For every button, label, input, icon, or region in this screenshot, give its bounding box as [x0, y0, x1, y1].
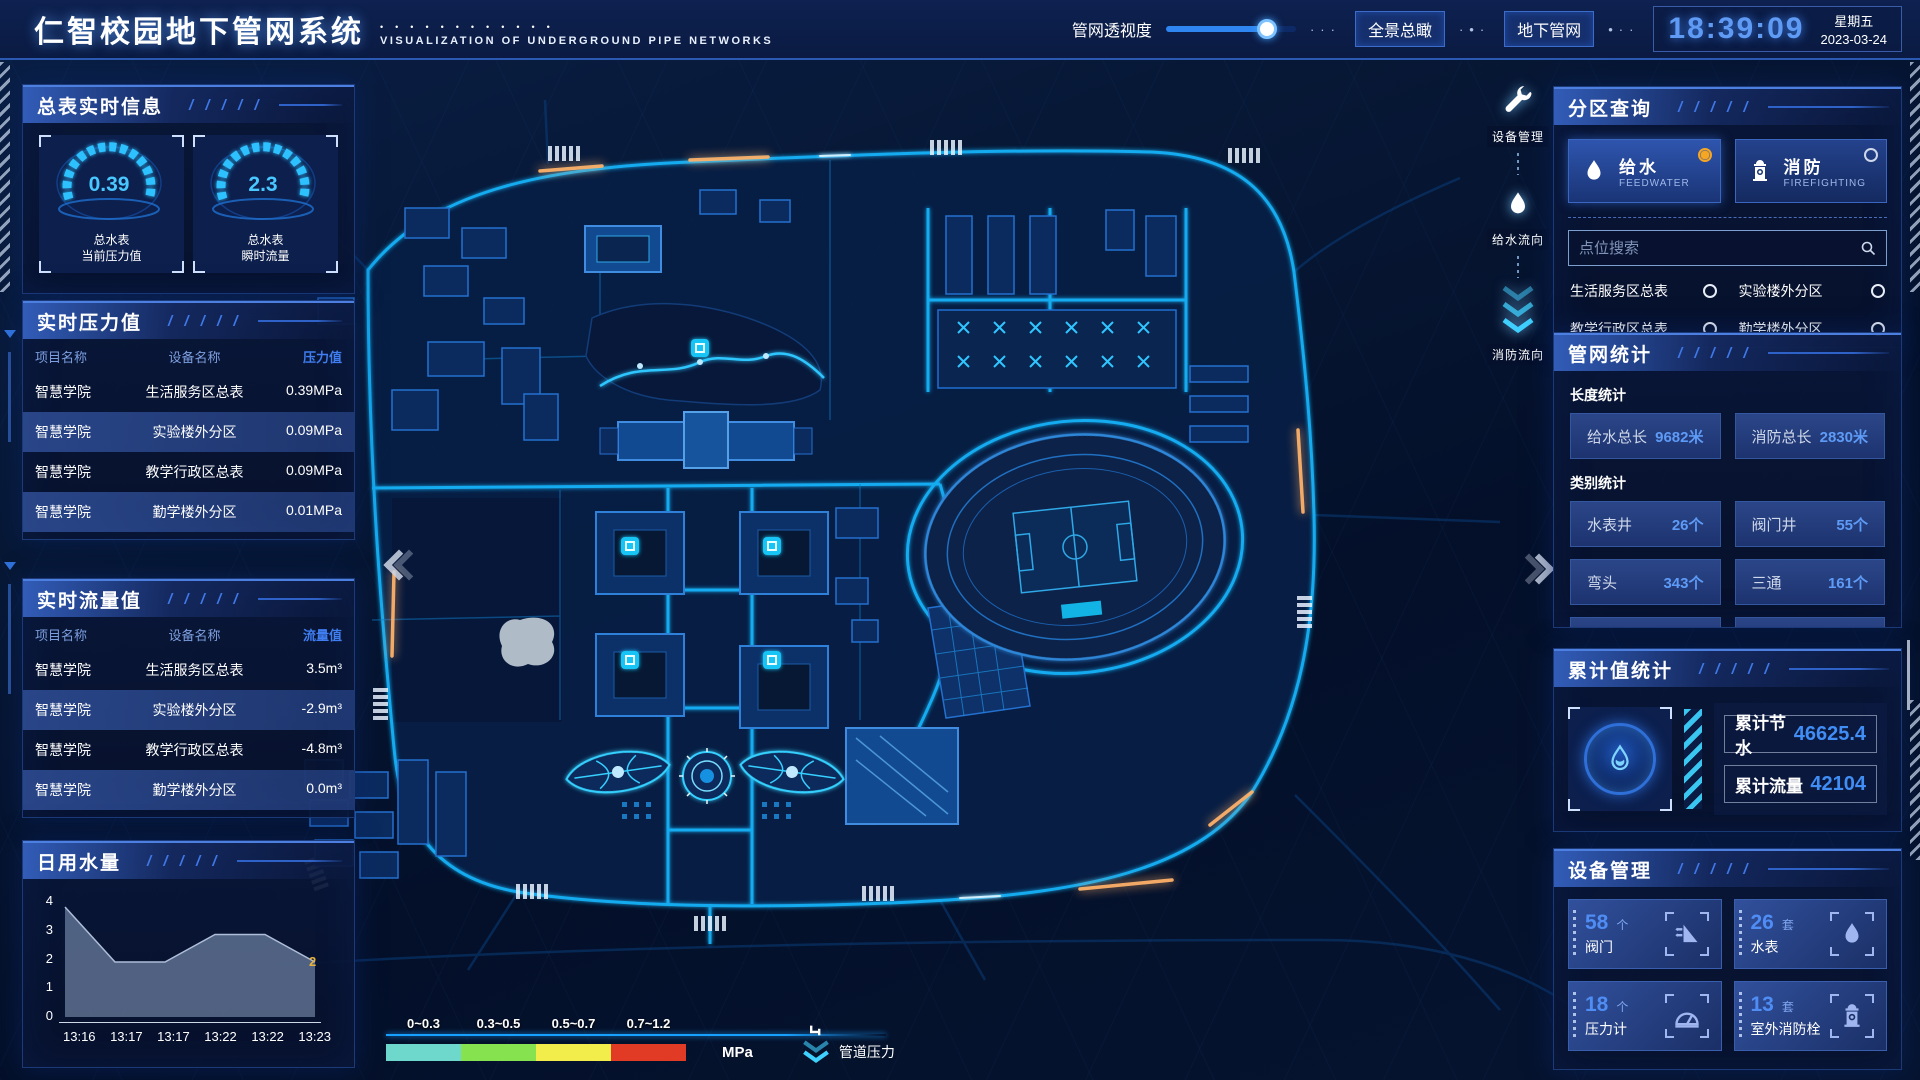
table-row[interactable]: 智慧学院实验楼外分区0.09MPa — [23, 412, 354, 452]
feedwater-flow-tool-label: 给水流向 — [1487, 229, 1549, 250]
search-input[interactable] — [1579, 240, 1860, 257]
scroll-bar[interactable] — [1907, 640, 1910, 710]
table-header: 项目名称 设备名称 压力值 — [23, 339, 354, 372]
cumulative-saving-row: 累计节水 46625.4 — [1724, 715, 1877, 753]
wrench-icon — [1501, 84, 1535, 118]
scroll-marker — [4, 330, 16, 338]
weekday: 星期五 — [1834, 11, 1873, 30]
search-icon[interactable] — [1860, 240, 1876, 256]
stat-box-valve-well: 阀门井 55个 — [1735, 501, 1886, 547]
panel-title: 管网统计 — [1568, 340, 1652, 367]
slash-decoration — [1678, 861, 1752, 878]
zone-list-item[interactable]: 实验楼外分区 — [1737, 272, 1888, 310]
scroll-bar[interactable] — [8, 352, 11, 442]
table-header: 项目名称 设备名称 流量值 — [23, 617, 354, 650]
pipe-stats-panel: 管网统计 长度统计 给水总长 9682米 消防总长 2830米 类别统计 水表井… — [1553, 332, 1902, 628]
stat-box-clipped — [1735, 617, 1886, 628]
chart-end-value: 2 — [309, 954, 316, 969]
slash-decoration — [1678, 99, 1752, 116]
zone-list-item[interactable]: 生活服务区总表 — [1568, 272, 1719, 310]
slash-decoration — [189, 97, 263, 114]
water-drop-icon — [1504, 189, 1532, 219]
scroll-bar[interactable] — [8, 584, 11, 694]
flow-table-panel: 实时流量值 项目名称 设备名称 流量值 智慧学院生活服务区总表3.5m³ 智慧学… — [22, 578, 355, 818]
pipe-pressure-icon[interactable] — [801, 1024, 831, 1066]
water-drop-icon — [1839, 921, 1865, 947]
clock-box: 18:39:09 星期五 2023-03-24 — [1653, 6, 1902, 52]
dashed-divider — [1568, 217, 1887, 218]
device-mgmt-tool-label: 设备管理 — [1487, 126, 1549, 147]
pressure-table-panel: 实时压力值 项目名称 设备名称 压力值 智慧学院生活服务区总表0.39MPa 智… — [22, 300, 355, 540]
zone-radio[interactable] — [1871, 284, 1885, 298]
zone-query-panel: 分区查询 给水 FEEDWATER 消防 FIREFIGHTING — [1553, 86, 1902, 348]
panel-title: 分区查询 — [1568, 94, 1652, 121]
cumulative-panel: 累计值统计 累计节水 46625.4 累计流量 42104 — [1553, 648, 1902, 832]
panel-header: 总表实时信息 — [23, 85, 354, 123]
firefighting-toggle[interactable]: 消防 FIREFIGHTING — [1735, 139, 1888, 203]
cumulative-flow-row: 累计流量 42104 — [1724, 765, 1877, 803]
gauge-value-text: 0.39 — [89, 173, 130, 196]
pressure-gauge-icon — [1673, 1002, 1701, 1030]
edge-hatch-decoration — [1910, 700, 1920, 860]
stat-box-clipped — [1570, 617, 1721, 628]
gauge-value-text: 2.3 — [248, 173, 277, 196]
gauge-label: 总水表 当前压力值 — [39, 232, 184, 264]
legend-swatch — [461, 1044, 536, 1061]
panel-title: 实时流量值 — [37, 586, 142, 613]
slash-decoration — [1699, 661, 1773, 678]
area-chart-svg: 2 — [59, 893, 321, 1023]
edge-hatch-decoration — [0, 62, 10, 292]
meter-info-panel: 总表实时信息 0.39 总水表 当前压力值 — [22, 84, 355, 294]
daily-usage-panel: 日用水量 4 3 2 1 0 2 — [22, 840, 355, 1068]
clock-time: 18:39:09 — [1668, 12, 1804, 46]
line-decoration — [258, 320, 342, 322]
pressure-legend: 0~0.30.3~0.5 0.5~0.70.7~1.2 MPa 管道压力 — [386, 1016, 946, 1066]
header: 仁智校园地下管网系统 •••••••••••• VISUALIZATION OF… — [0, 0, 1920, 60]
table-row[interactable]: 智慧学院实验楼外分区-2.9m³ — [23, 690, 354, 730]
app-title: 仁智校园地下管网系统 — [34, 7, 364, 51]
gauge-label: 总水表 瞬时流量 — [193, 232, 338, 264]
stat-box-tee: 三通 161个 — [1735, 559, 1886, 605]
panel-title: 日用水量 — [37, 848, 121, 875]
feedwater-radio[interactable] — [1698, 148, 1712, 162]
line-decoration — [1789, 668, 1889, 670]
fire-flow-tool-button[interactable] — [1495, 284, 1541, 342]
slash-decoration — [168, 591, 242, 608]
panel-title: 实时压力值 — [37, 308, 142, 335]
table-row[interactable]: 智慧学院生活服务区总表3.5m³ — [23, 650, 354, 690]
flow-gauge-card: 2.3 总水表 瞬时流量 — [193, 135, 338, 273]
map-prev-button[interactable] — [382, 548, 416, 592]
stat-box-feedwater-length: 给水总长 9682米 — [1570, 413, 1721, 459]
legend-swatch — [386, 1044, 461, 1061]
title-dots-decoration: •••••••••••• — [380, 22, 773, 32]
valve-icon — [1673, 920, 1701, 948]
water-emblem — [1568, 707, 1672, 811]
x-axis-ticks: 13:1613:17 13:1713:22 13:2213:23 — [63, 1029, 331, 1044]
line-decoration — [237, 860, 342, 862]
line-decoration — [258, 598, 342, 600]
hydrant-icon — [1839, 1003, 1865, 1029]
slider-thumb[interactable] — [1257, 19, 1277, 39]
daily-usage-chart: 4 3 2 1 0 2 13:1613:17 13:1713:22 1 — [23, 879, 354, 1044]
dotted-connector — [1517, 153, 1519, 175]
dotted-connector — [1517, 256, 1519, 278]
device-mgmt-tool-button[interactable] — [1495, 78, 1541, 124]
stripe-divider — [1684, 709, 1702, 809]
firefighting-radio[interactable] — [1864, 148, 1878, 162]
line-decoration — [1768, 868, 1889, 870]
dot-separator: ·•· — [1459, 22, 1490, 37]
dot-separator: ··· — [1310, 22, 1341, 37]
device-card-hydrant[interactable]: 13 套 室外消防栓 — [1734, 981, 1888, 1051]
hydrant-icon — [1748, 158, 1772, 184]
category-stats-label: 类别统计 — [1554, 459, 1901, 501]
table-row[interactable]: 智慧学院勤学楼外分区0.01MPa — [23, 492, 354, 532]
device-mgmt-panel: 设备管理 58 个 阀门 26 套 水表 — [1553, 848, 1902, 1070]
panel-title: 设备管理 — [1568, 856, 1652, 883]
device-card-pressure-gauge[interactable]: 18 个 压力计 — [1568, 981, 1722, 1051]
table-row[interactable]: 智慧学院勤学楼外分区0.0m³ — [23, 770, 354, 810]
water-drop-icon — [1605, 744, 1635, 774]
flow-gauge: 2.3 — [193, 139, 334, 227]
device-card-meter[interactable]: 26 套 水表 — [1734, 899, 1888, 969]
table-row[interactable]: 智慧学院教学行政区总表-4.8m³ — [23, 730, 354, 770]
line-decoration — [279, 104, 342, 106]
legend-swatch — [536, 1044, 611, 1061]
length-stats-label: 长度统计 — [1554, 371, 1901, 413]
pressure-gauge: 0.39 — [39, 139, 180, 227]
panel-title: 累计值统计 — [1568, 656, 1673, 683]
slash-decoration — [168, 313, 242, 330]
slash-decoration — [147, 853, 221, 870]
stat-box-elbow: 弯头 343个 — [1570, 559, 1721, 605]
stat-box-meter-well: 水表井 26个 — [1570, 501, 1721, 547]
panel-title: 总表实时信息 — [37, 92, 163, 119]
date: 2023-03-24 — [1821, 32, 1888, 47]
app-subtitle: VISUALIZATION OF UNDERGROUND PIPE NETWOR… — [380, 35, 773, 47]
device-card-valve[interactable]: 58 个 阀门 — [1568, 899, 1722, 969]
table-row[interactable]: 智慧学院生活服务区总表0.39MPa — [23, 372, 354, 412]
dot-separator: •·· — [1608, 22, 1639, 37]
scroll-marker — [4, 562, 16, 570]
slash-decoration — [1678, 345, 1752, 362]
legend-swatch — [611, 1044, 686, 1061]
legend-unit: MPa — [722, 1044, 753, 1061]
water-drop-icon — [1581, 158, 1607, 184]
line-decoration — [1768, 352, 1889, 354]
pressure-gauge-card: 0.39 总水表 当前压力值 — [39, 135, 184, 273]
zone-radio[interactable] — [1703, 284, 1717, 298]
y-axis-ticks: 4 3 2 1 0 — [33, 893, 59, 1023]
fire-flow-tool-label: 消防流向 — [1487, 344, 1549, 365]
triple-chevron-down-icon — [1500, 286, 1536, 340]
table-row[interactable]: 智慧学院砺学楼外分区0.02MPa — [23, 532, 354, 540]
overview-button[interactable]: 全景总瞰 — [1355, 11, 1445, 47]
line-decoration — [1768, 106, 1889, 108]
search-box[interactable] — [1568, 230, 1887, 266]
slider-fill — [1166, 26, 1267, 32]
table-row[interactable]: 智慧学院砺学楼外分区2.3m³ — [23, 810, 354, 818]
dashboard-screen: 仁智校园地下管网系统 •••••••••••• VISUALIZATION OF… — [0, 0, 1920, 1080]
table-row[interactable]: 智慧学院教学行政区总表0.09MPa — [23, 452, 354, 492]
feedwater-flow-tool-button[interactable] — [1495, 181, 1541, 227]
edge-hatch-decoration — [1910, 62, 1920, 292]
stat-box-fire-length: 消防总长 2830米 — [1735, 413, 1886, 459]
underground-button[interactable]: 地下管网 — [1504, 11, 1594, 47]
transparency-slider[interactable] — [1166, 20, 1296, 38]
feedwater-toggle[interactable]: 给水 FEEDWATER — [1568, 139, 1721, 203]
pipe-pressure-label: 管道压力 — [839, 1042, 895, 1062]
transparency-slider-label: 管网透视度 — [1072, 17, 1152, 41]
map-tools: 设备管理 给水流向 消防流向 — [1480, 78, 1556, 365]
